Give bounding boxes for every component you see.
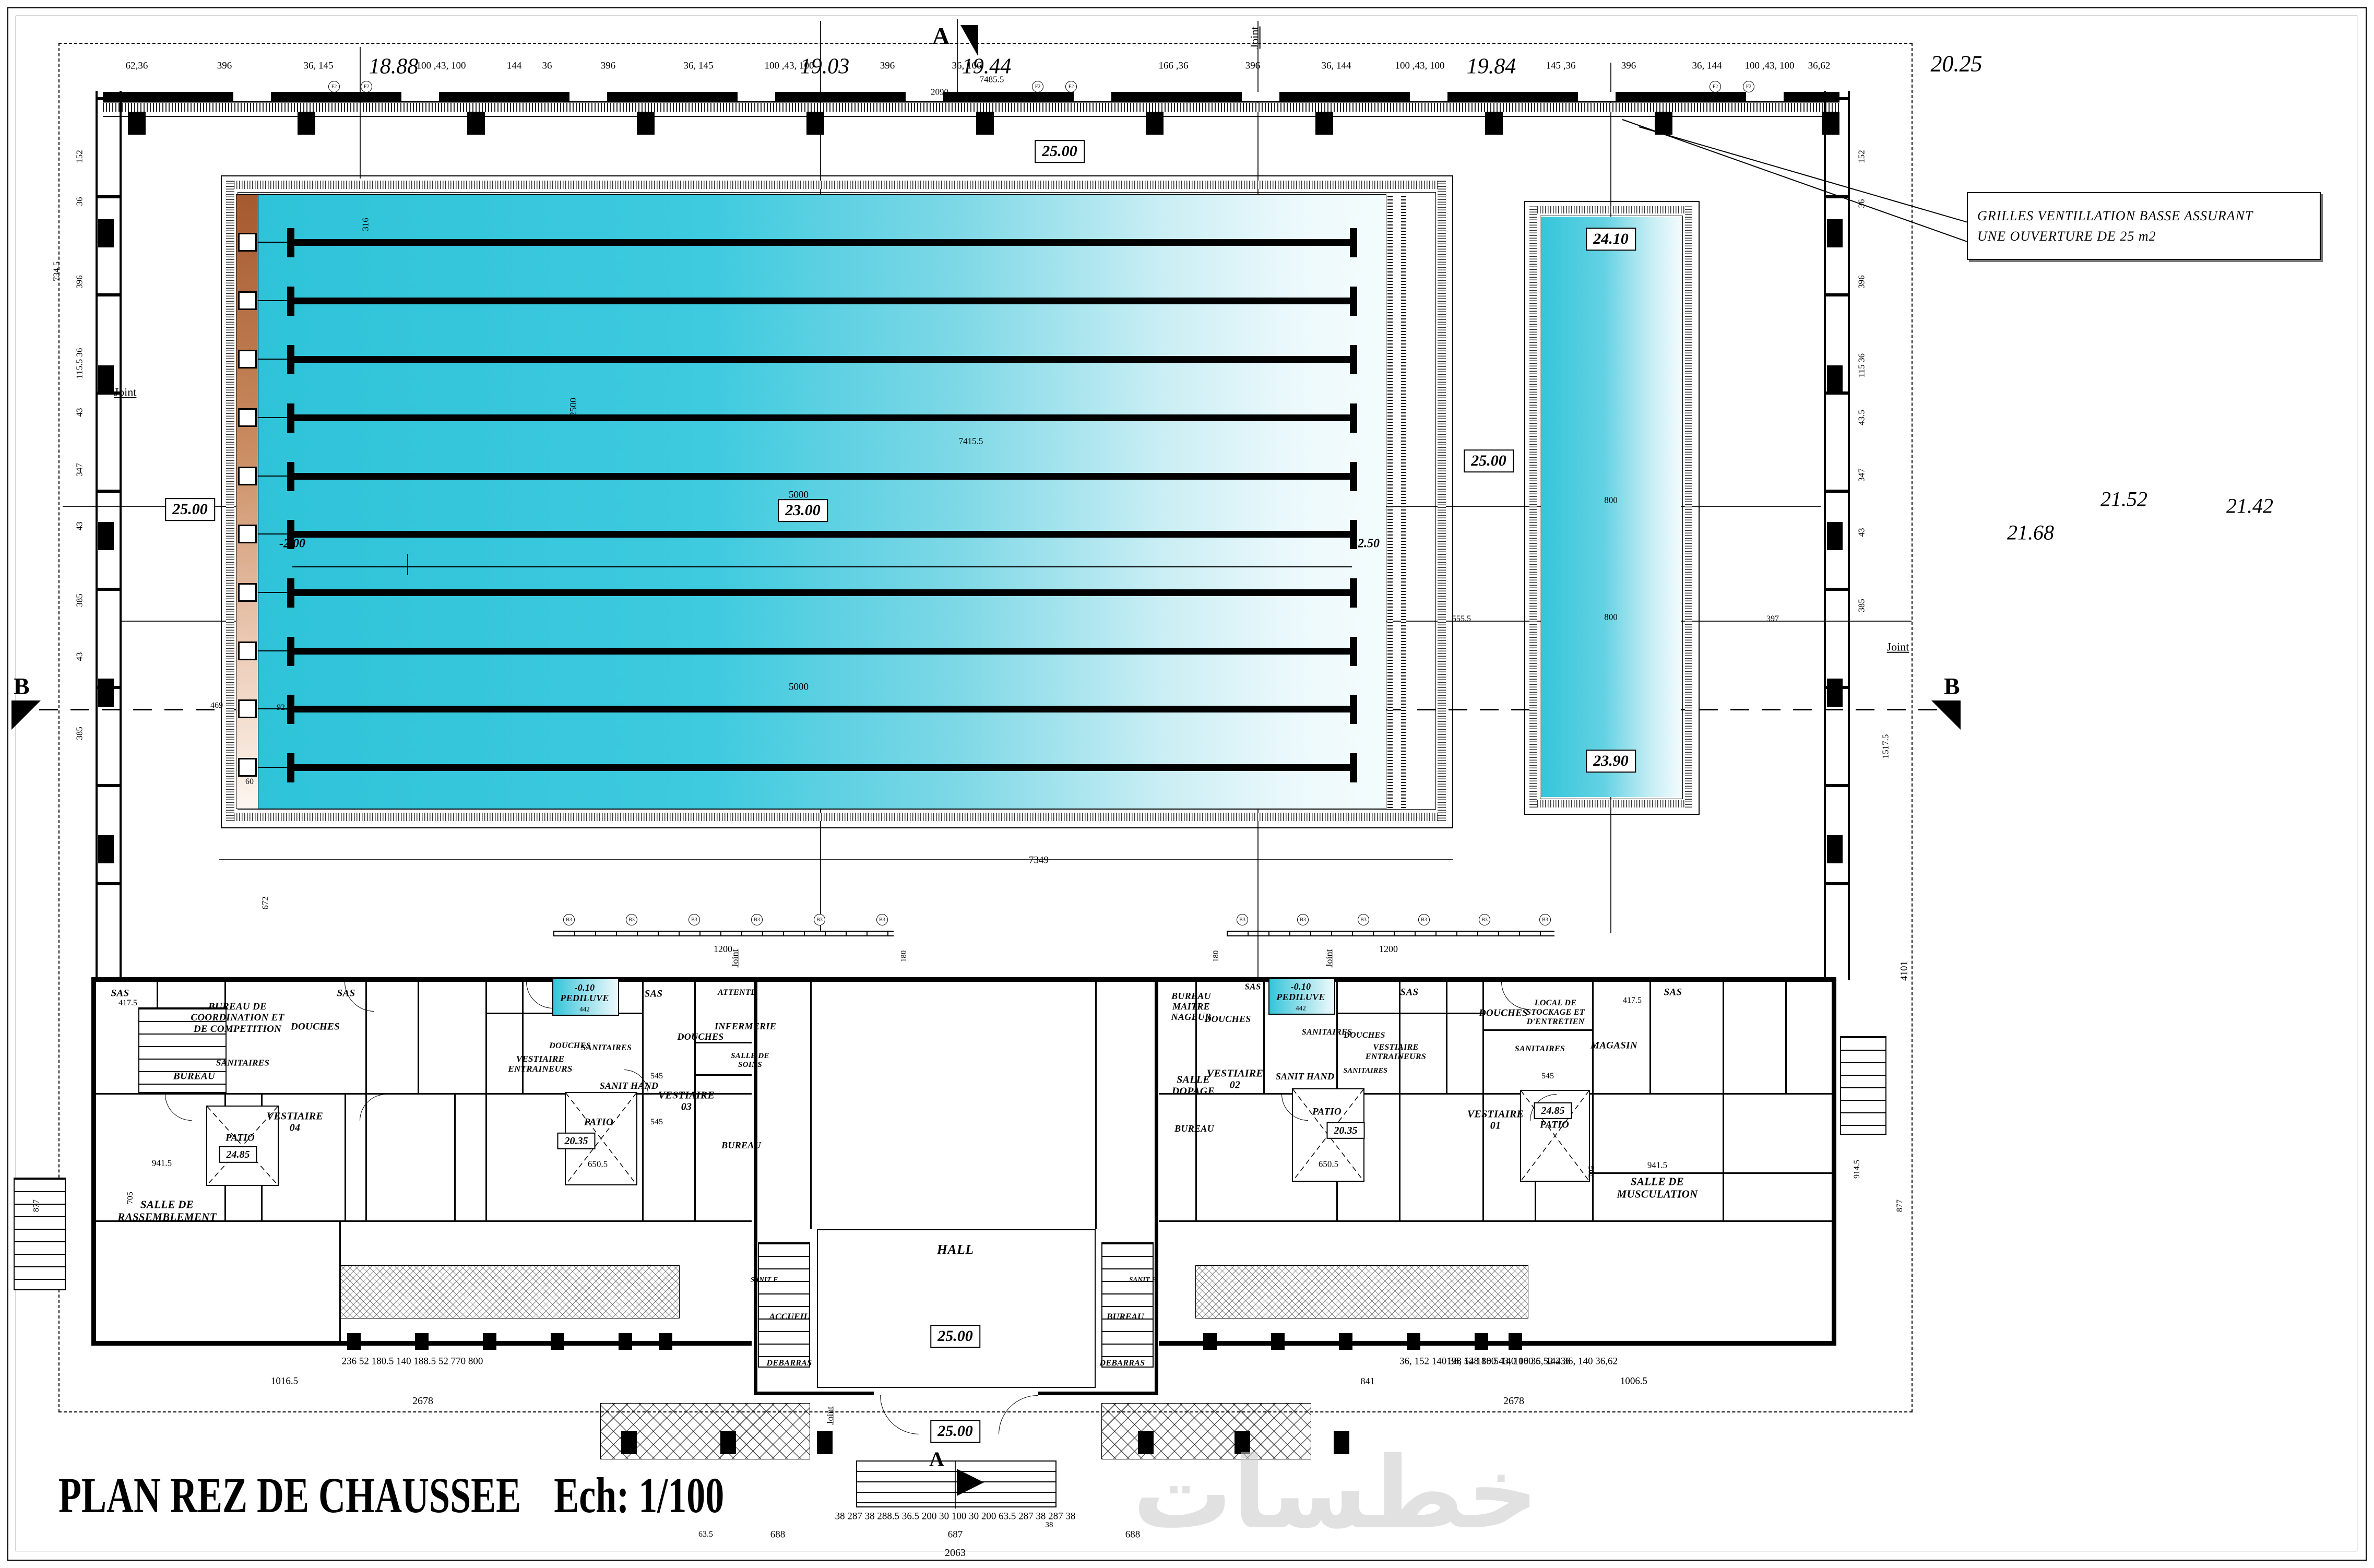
main-pool-tile-band-bottom xyxy=(226,813,1446,821)
section-a-bottom-label: A xyxy=(929,1447,944,1471)
drawing-title: PLAN REZ DE CHAUSSEEEch: 1/100 xyxy=(58,1468,724,1525)
lane-link-line xyxy=(258,650,291,651)
lane-link-line xyxy=(258,476,291,477)
callout-line2: UNE OUVERTURE DE 25 m2 xyxy=(1977,226,2320,246)
section-b-left-label: B xyxy=(14,672,30,700)
small-pool-tile-band-top xyxy=(1529,206,1692,213)
floor-plan-sheet: F2F2F2F2F2F2B3B3B3B3B3B3B3B3B3B3B3B3 62,… xyxy=(0,0,2374,1568)
starting-block xyxy=(238,758,257,777)
lane-rope xyxy=(291,706,1353,712)
ventilation-callout: GRILLES VENTILLATION BASSE ASSURANT UNE … xyxy=(1967,192,2321,260)
starting-block xyxy=(238,350,257,369)
lane-rope xyxy=(291,531,1353,538)
starting-block xyxy=(238,408,257,427)
lane-rope xyxy=(291,473,1353,480)
starting-block xyxy=(238,233,257,252)
starting-block xyxy=(238,642,257,660)
section-a-bottom-arrow xyxy=(957,1469,984,1496)
entrance-steps xyxy=(856,1460,1057,1507)
small-pool-tile-band-left xyxy=(1529,206,1537,807)
main-pool-tile-band-left xyxy=(226,181,234,821)
starting-block xyxy=(238,583,257,602)
north-wall xyxy=(103,92,1839,117)
title-scale: Ech: 1/100 xyxy=(554,1468,724,1524)
section-a-top-arrow xyxy=(960,25,978,56)
small-pool-water xyxy=(1541,217,1681,797)
lane-rope xyxy=(291,298,1353,304)
lane-link-line xyxy=(258,417,291,418)
callout-line1: GRILLES VENTILLATION BASSE ASSURANT xyxy=(1977,206,2320,226)
title-main: PLAN REZ DE CHAUSSEE xyxy=(58,1468,521,1524)
main-pool-tile-band-top xyxy=(226,181,1446,189)
section-a-top-label: A xyxy=(932,22,949,50)
lane-link-line xyxy=(258,300,291,301)
section-b-right-arrow xyxy=(1931,700,1961,730)
lane-rope xyxy=(291,356,1353,363)
section-b-right-label: B xyxy=(1944,672,1960,700)
starting-block xyxy=(238,525,257,543)
pool-slope-flag xyxy=(334,554,407,567)
starting-block xyxy=(238,291,257,310)
watermark: خطسات xyxy=(1133,1435,1539,1551)
lane-rope xyxy=(291,648,1353,655)
lane-link-line xyxy=(258,242,291,243)
lane-rope xyxy=(291,414,1353,421)
main-pool-tile-band-right xyxy=(1438,181,1446,821)
small-pool-tile-band-right xyxy=(1685,206,1692,807)
pool-slope-line xyxy=(292,566,1352,567)
lane-rope xyxy=(291,589,1353,596)
small-pool-tile-band-bottom xyxy=(1529,800,1692,807)
lane-rope xyxy=(291,239,1353,246)
lane-link-line xyxy=(258,767,291,768)
lane-link-line xyxy=(258,359,291,360)
lane-link-line xyxy=(258,592,291,593)
starting-block xyxy=(238,699,257,718)
section-b-left-arrow xyxy=(11,700,41,730)
starting-block xyxy=(238,467,257,485)
lane-rope xyxy=(291,764,1353,771)
lane-link-line xyxy=(258,533,291,534)
